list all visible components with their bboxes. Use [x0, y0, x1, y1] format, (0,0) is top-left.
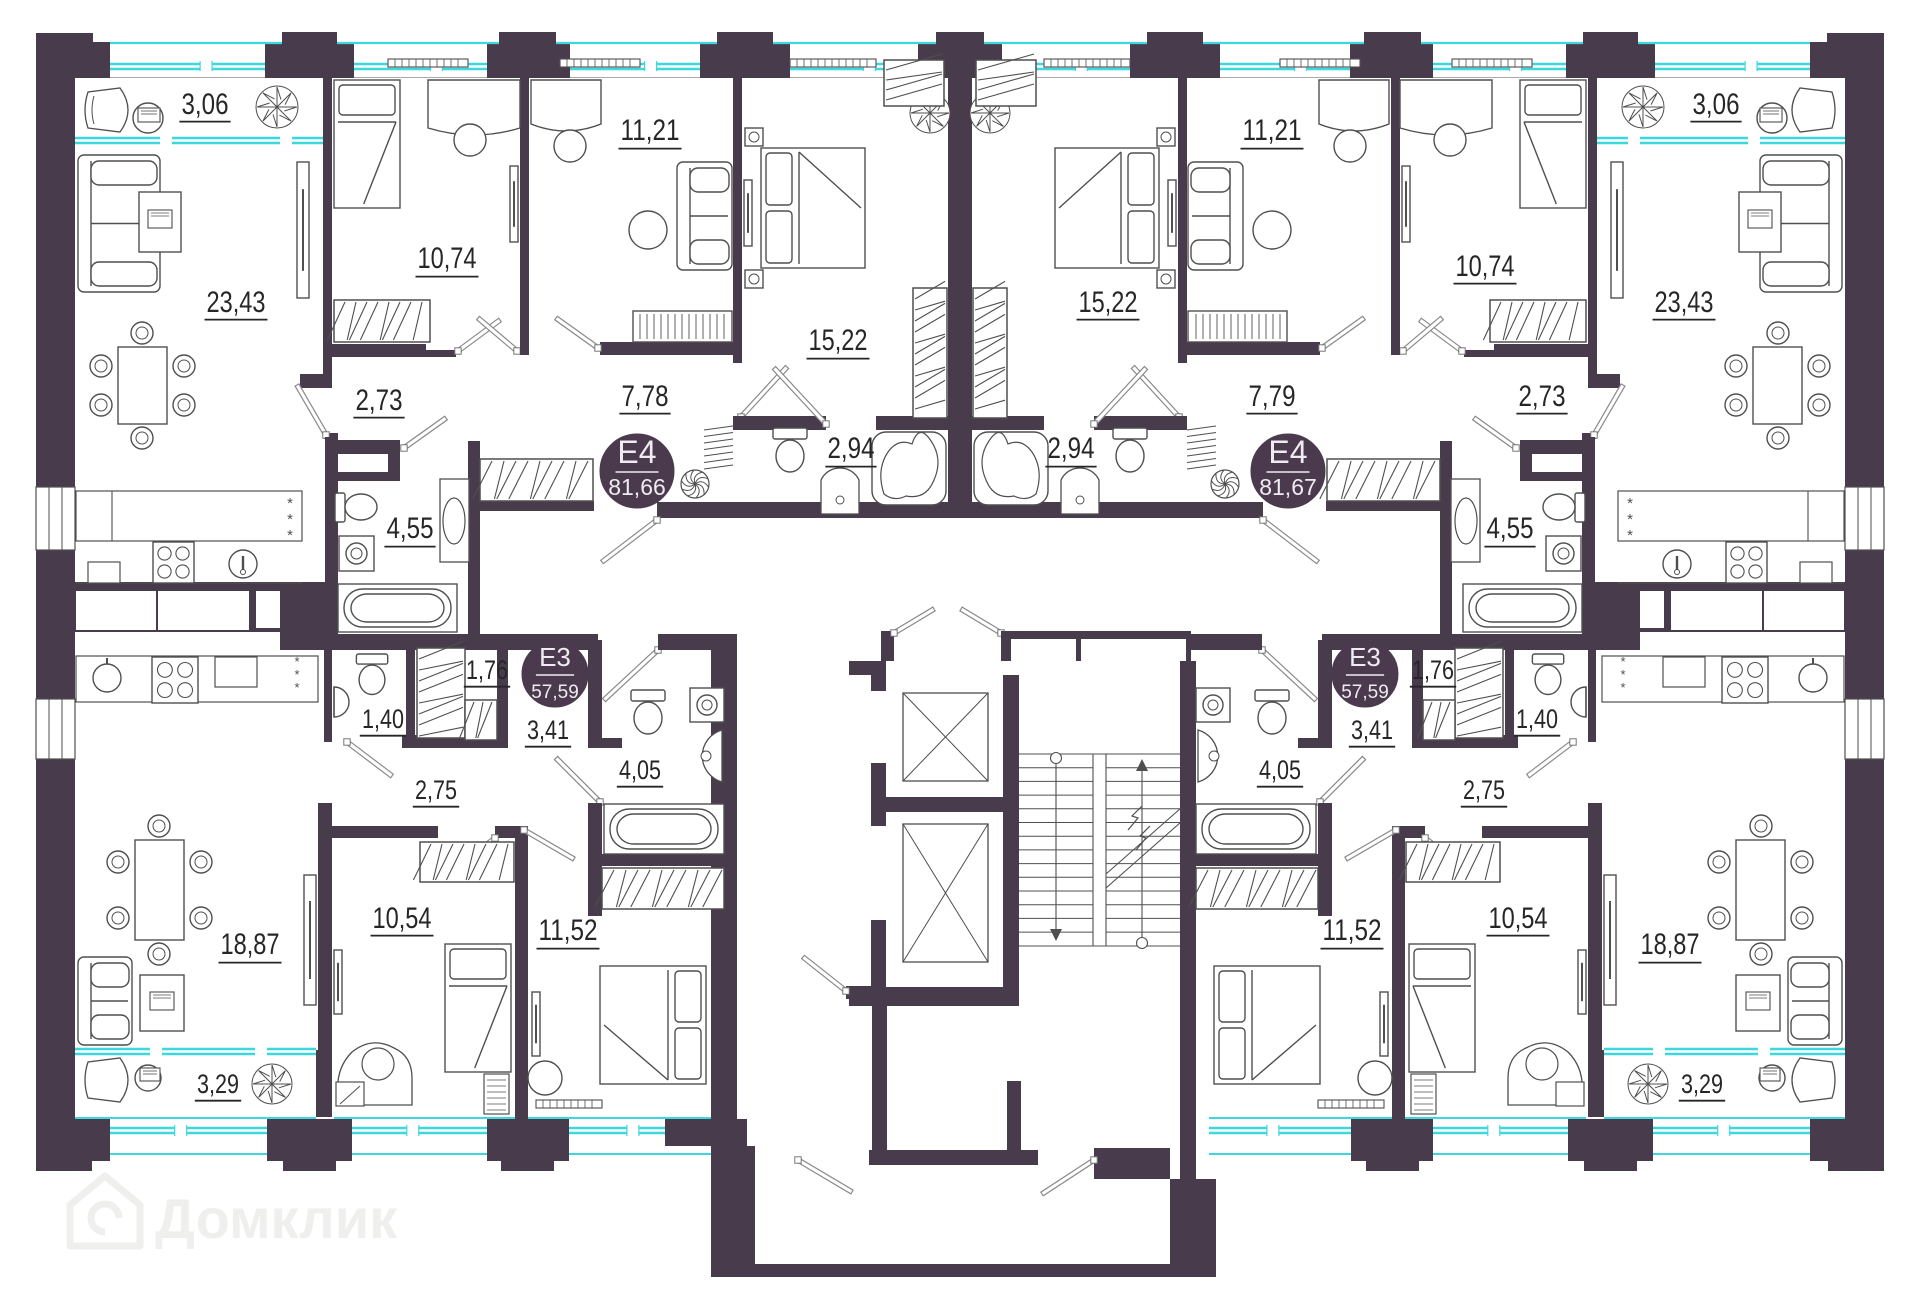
svg-text:3,29: 3,29 — [197, 1069, 239, 1099]
svg-text:10,54: 10,54 — [1489, 902, 1548, 935]
svg-text:Е3: Е3 — [1349, 642, 1381, 672]
svg-text:Е3: Е3 — [539, 642, 571, 672]
svg-text:*: * — [287, 527, 293, 544]
svg-text:11,52: 11,52 — [539, 914, 598, 947]
svg-text:3,06: 3,06 — [182, 88, 229, 121]
svg-text:15,22: 15,22 — [809, 324, 868, 357]
svg-text:3,06: 3,06 — [1693, 88, 1740, 121]
svg-text:3,41: 3,41 — [1351, 715, 1393, 745]
svg-text:10,74: 10,74 — [1456, 250, 1515, 283]
svg-text:4,55: 4,55 — [1487, 512, 1534, 545]
svg-text:*: * — [287, 495, 293, 512]
svg-text:1,40: 1,40 — [362, 704, 404, 734]
svg-text:2,73: 2,73 — [356, 384, 403, 417]
svg-text:10,54: 10,54 — [373, 902, 432, 935]
svg-text:2,94: 2,94 — [828, 432, 875, 465]
svg-text:11,52: 11,52 — [1323, 914, 1382, 947]
svg-text:4,55: 4,55 — [387, 512, 434, 545]
svg-text:3,29: 3,29 — [1681, 1069, 1723, 1099]
svg-text:2,75: 2,75 — [1463, 775, 1505, 805]
svg-text:7,79: 7,79 — [1249, 380, 1296, 413]
svg-text:10,74: 10,74 — [418, 242, 477, 275]
svg-text:81,67: 81,67 — [1259, 474, 1317, 500]
svg-text:2,75: 2,75 — [415, 775, 457, 805]
svg-text:*: * — [287, 511, 293, 528]
svg-text:18,87: 18,87 — [221, 928, 280, 961]
svg-text:1,76: 1,76 — [1412, 655, 1454, 685]
svg-text:11,21: 11,21 — [621, 114, 680, 147]
svg-text:*: * — [1627, 511, 1633, 528]
svg-text:7,78: 7,78 — [622, 380, 669, 413]
svg-text:Е4: Е4 — [1268, 434, 1307, 470]
svg-text:*: * — [1627, 495, 1633, 512]
svg-text:18,87: 18,87 — [1641, 928, 1700, 961]
svg-text:15,22: 15,22 — [1079, 286, 1138, 319]
svg-text:*: * — [1620, 680, 1625, 695]
svg-text:11,21: 11,21 — [1243, 114, 1302, 147]
svg-text:23,43: 23,43 — [207, 286, 266, 319]
svg-text:*: * — [1627, 527, 1633, 544]
svg-text:4,05: 4,05 — [1259, 755, 1301, 785]
svg-text:23,43: 23,43 — [1655, 286, 1714, 319]
svg-text:57,59: 57,59 — [1341, 682, 1389, 703]
svg-text:2,94: 2,94 — [1048, 432, 1095, 465]
svg-text:2,73: 2,73 — [1519, 380, 1566, 413]
svg-text:Е4: Е4 — [617, 434, 656, 470]
svg-text:57,59: 57,59 — [531, 682, 579, 703]
svg-text:81,66: 81,66 — [608, 474, 666, 500]
svg-text:1,40: 1,40 — [1516, 704, 1558, 734]
svg-text:*: * — [294, 680, 299, 695]
svg-text:1,76: 1,76 — [466, 655, 508, 685]
svg-text:Домклик: Домклик — [155, 1187, 398, 1250]
svg-text:4,05: 4,05 — [619, 755, 661, 785]
svg-text:3,41: 3,41 — [527, 715, 569, 745]
